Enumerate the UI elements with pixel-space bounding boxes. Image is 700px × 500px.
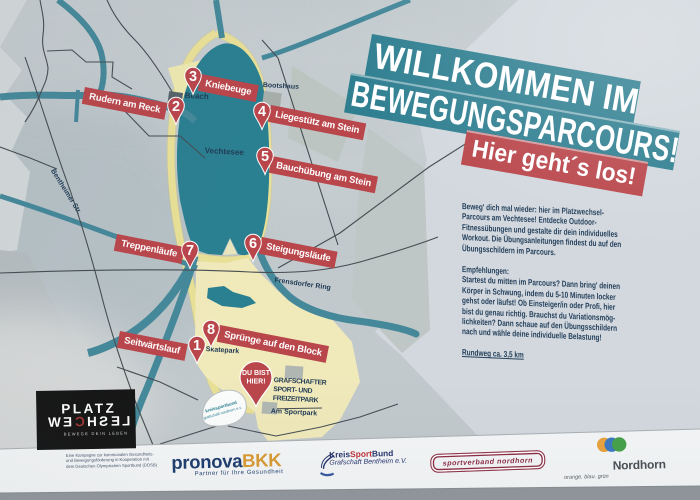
svg-text:3: 3 xyxy=(189,69,197,85)
svg-text:2: 2 xyxy=(172,99,180,115)
svg-text:1: 1 xyxy=(193,338,201,354)
svg-text:5: 5 xyxy=(261,149,269,165)
svg-text:8: 8 xyxy=(207,322,215,338)
svg-text:DU BIST: DU BIST xyxy=(242,370,271,377)
svg-text:HIER!: HIER! xyxy=(246,379,265,386)
svg-text:6: 6 xyxy=(249,236,257,252)
svg-text:4: 4 xyxy=(258,104,266,120)
svg-text:7: 7 xyxy=(186,243,194,259)
